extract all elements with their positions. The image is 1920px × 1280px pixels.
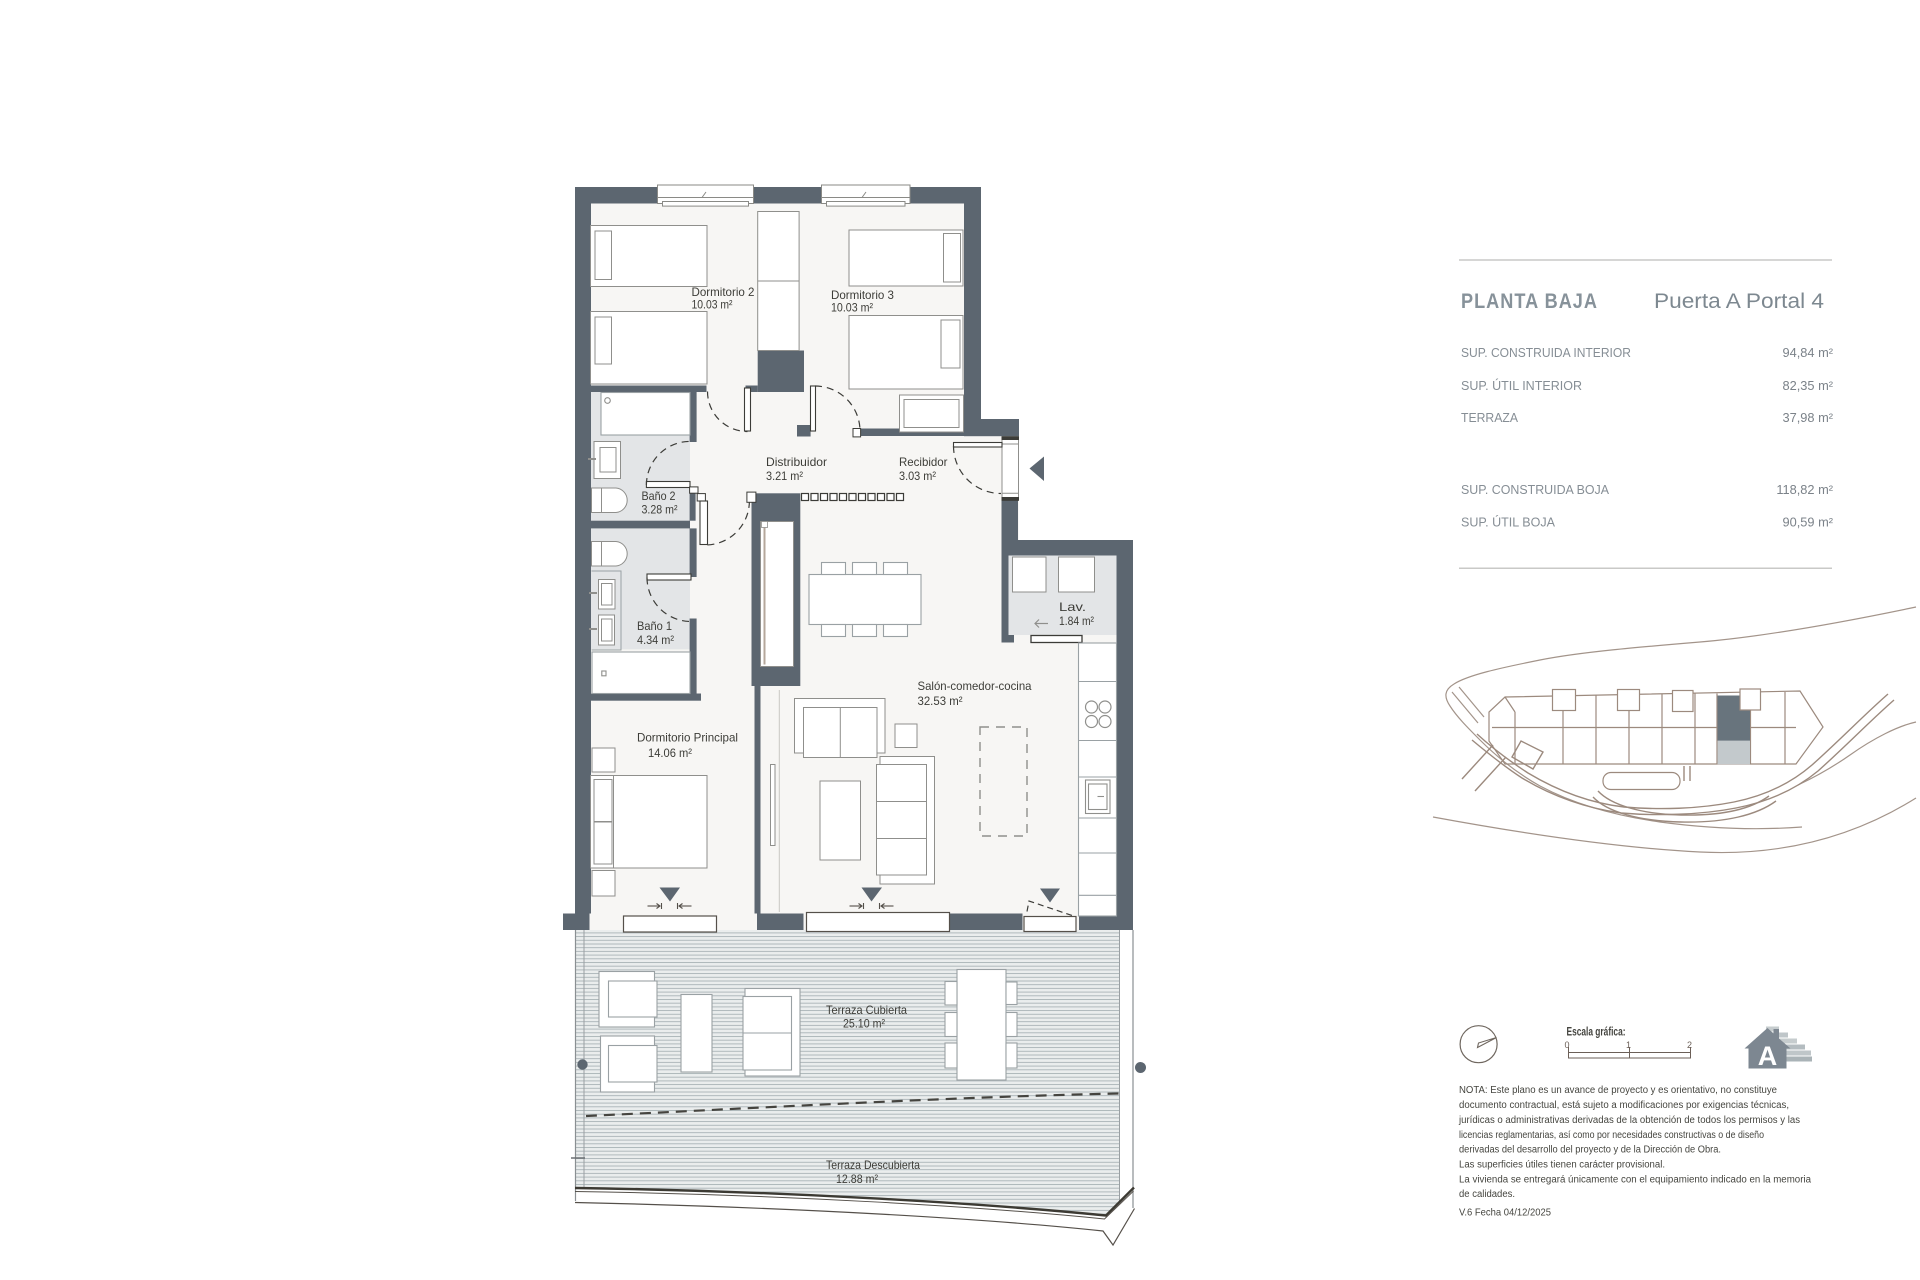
svg-text:A: A bbox=[1758, 1041, 1778, 1071]
svg-text:Terraza Cubierta: Terraza Cubierta bbox=[826, 1003, 907, 1017]
svg-text:Salón-comedor-cocina: Salón-comedor-cocina bbox=[918, 679, 1032, 693]
svg-text:3.28 m²: 3.28 m² bbox=[642, 503, 678, 517]
svg-text:TERRAZA: TERRAZA bbox=[1461, 410, 1518, 425]
svg-text:Las superficies útiles tienen: Las superficies útiles tienen carácter p… bbox=[1459, 1160, 1665, 1171]
svg-text:4.34 m²: 4.34 m² bbox=[637, 633, 674, 647]
svg-text:La vivienda se entregará única: La vivienda se entregará únicamente con … bbox=[1459, 1175, 1811, 1186]
svg-text:Puerta A Portal 4: Puerta A Portal 4 bbox=[1654, 289, 1824, 313]
svg-text:10.03 m²: 10.03 m² bbox=[831, 301, 873, 315]
svg-text:12.88 m²: 12.88 m² bbox=[836, 1172, 878, 1186]
svg-text:25.10 m²: 25.10 m² bbox=[843, 1017, 885, 1031]
svg-text:Recibidor: Recibidor bbox=[899, 455, 948, 469]
svg-text:Dormitorio Principal: Dormitorio Principal bbox=[637, 731, 738, 745]
svg-text:SUP. ÚTIL INTERIOR: SUP. ÚTIL INTERIOR bbox=[1461, 378, 1582, 393]
svg-text:82,35 m²: 82,35 m² bbox=[1782, 378, 1833, 393]
svg-text:94,84 m²: 94,84 m² bbox=[1782, 345, 1833, 360]
svg-text:0: 0 bbox=[1565, 1040, 1570, 1050]
svg-text:licencias reglamentarias, así: licencias reglamentarias, así como por n… bbox=[1459, 1130, 1764, 1141]
svg-text:1.84 m²: 1.84 m² bbox=[1059, 614, 1094, 628]
svg-text:3.03 m²: 3.03 m² bbox=[899, 469, 936, 483]
svg-text:Terraza Descubierta: Terraza Descubierta bbox=[826, 1158, 920, 1172]
svg-text:PLANTA BAJA: PLANTA BAJA bbox=[1461, 289, 1598, 313]
svg-text:10.03 m²: 10.03 m² bbox=[692, 298, 733, 312]
svg-text:Escala gráfica:: Escala gráfica: bbox=[1567, 1027, 1626, 1039]
svg-text:Baño 1: Baño 1 bbox=[637, 619, 672, 633]
svg-text:32.53 m²: 32.53 m² bbox=[918, 694, 963, 708]
svg-text:SUP. CONSTRUIDA BOJA: SUP. CONSTRUIDA BOJA bbox=[1461, 482, 1609, 497]
svg-text:jurídicas o administrativas de: jurídicas o administrativas derivadas de… bbox=[1458, 1115, 1800, 1126]
svg-text:SUP. ÚTIL BOJA: SUP. ÚTIL BOJA bbox=[1461, 515, 1555, 530]
svg-text:Distribuidor: Distribuidor bbox=[766, 455, 827, 469]
svg-text:14.06 m²: 14.06 m² bbox=[648, 746, 692, 760]
svg-text:118,82 m²: 118,82 m² bbox=[1776, 482, 1833, 497]
svg-text:de calidades.: de calidades. bbox=[1459, 1189, 1515, 1200]
svg-text:37,98 m²: 37,98 m² bbox=[1782, 410, 1833, 425]
svg-text:documento contractual, está su: documento contractual, está sujeto a mod… bbox=[1459, 1100, 1789, 1111]
svg-text:V.6 Fecha 04/12/2025: V.6 Fecha 04/12/2025 bbox=[1459, 1207, 1551, 1219]
svg-text:1: 1 bbox=[1626, 1040, 1631, 1050]
svg-text:2: 2 bbox=[1687, 1040, 1692, 1050]
svg-text:NOTA: Este plano es un avance: NOTA: Este plano es un avance de proyect… bbox=[1459, 1085, 1777, 1096]
svg-text:derivadas del desarrollo del p: derivadas del desarrollo del proyecto y … bbox=[1459, 1145, 1721, 1156]
svg-text:Baño 2: Baño 2 bbox=[642, 489, 676, 503]
svg-text:SUP. CONSTRUIDA INTERIOR: SUP. CONSTRUIDA INTERIOR bbox=[1461, 345, 1631, 360]
svg-text:3.21 m²: 3.21 m² bbox=[766, 469, 803, 483]
svg-text:Lav.: Lav. bbox=[1059, 600, 1086, 614]
svg-text:90,59 m²: 90,59 m² bbox=[1782, 515, 1833, 530]
